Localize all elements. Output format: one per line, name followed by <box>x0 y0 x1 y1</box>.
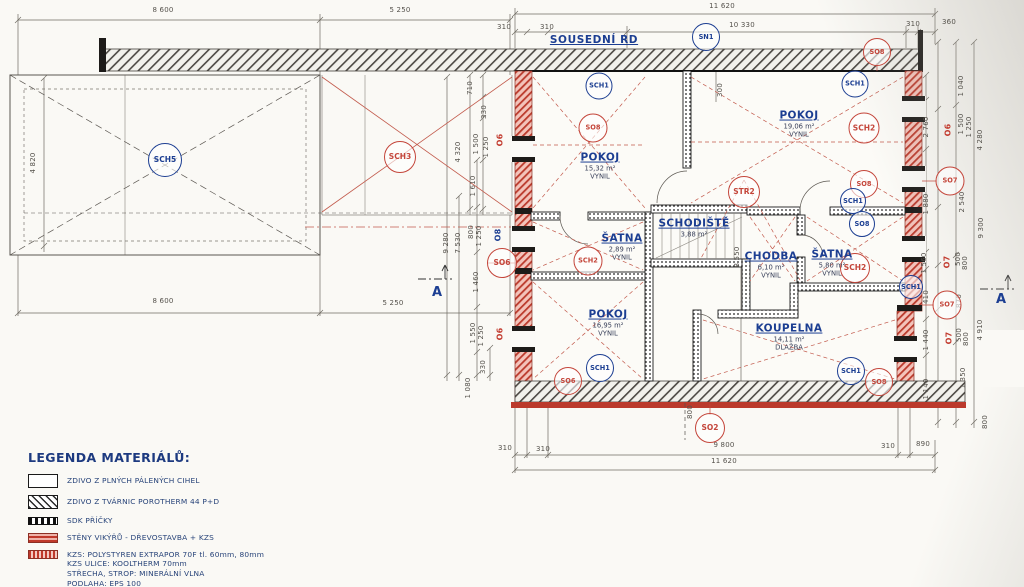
dimension-label: 11 620 <box>711 457 737 465</box>
room-label-5: CHODBA6,10 m²VYNIL <box>745 251 798 280</box>
legend-title: LEGENDA MATERIÁLŮ: <box>28 450 358 465</box>
dimension-label: 800 <box>981 415 989 429</box>
dimension-label: 800 <box>961 256 969 270</box>
room-floor-material: VYNIL <box>580 172 619 180</box>
room-area: 6,10 m² <box>745 263 798 271</box>
ref-tag-sch2: SCH2 <box>574 247 603 276</box>
ref-tag-sch1: SCH1 <box>842 71 869 98</box>
dimension-label: 310 <box>906 20 920 28</box>
dimension-label: 4 280 <box>976 129 984 150</box>
dimension-label: 5 250 <box>389 6 410 14</box>
legend-swatch-plain <box>28 474 58 488</box>
ref-tag-so2: SO2 <box>695 413 725 443</box>
dimension-label: 9 300 <box>977 217 985 238</box>
window-mark-label: O7 <box>943 256 952 269</box>
legend-item-line: STĚNY VIKÝŘŮ - DŘEVOSTAVBA + KZS <box>67 533 214 543</box>
window-mark-label: O6 <box>496 328 505 341</box>
room-area: 16,95 m² <box>588 321 627 329</box>
neighbor-building-label: SOUSEDNÍ RD <box>550 34 638 46</box>
ref-tag-so6: SO6 <box>487 248 517 278</box>
room-label-6: ŠATNA5,80 m²VYNIL <box>812 249 853 278</box>
window-mark-label: O8 <box>494 229 503 242</box>
room-floor-material: DLAŽBA <box>756 343 823 351</box>
dimension-label: 310 <box>497 23 511 31</box>
ref-tag-sch1: SCH1 <box>586 73 613 100</box>
room-name: ŠATNA <box>602 233 643 246</box>
dimension-label: 1 080 <box>464 377 472 398</box>
dimension-label: 9 800 <box>713 441 734 449</box>
room-name: CHODBA <box>745 251 798 264</box>
dimension-label: 1 560 <box>920 252 928 273</box>
dimension-label: 1 880 <box>922 193 930 214</box>
ref-tag-sch1: SCH1 <box>899 275 923 299</box>
ref-tag-so8: SO8 <box>865 368 893 396</box>
room-name: KOUPELNA <box>756 323 823 336</box>
dimension-label: 410 <box>922 290 930 304</box>
legend-item-line: PODLAHA: EPS 100 <box>67 579 264 587</box>
legend-item-line: KZS ULICE: KOOLTHERM 70mm <box>67 559 264 569</box>
legend-item: ZDIVO Z PLNÝCH PÁLENÝCH CIHEL <box>28 474 358 488</box>
room-name: POKOJ <box>588 309 627 322</box>
legend-item: STĚNY VIKÝŘŮ - DŘEVOSTAVBA + KZS <box>28 533 358 543</box>
dimension-label: 8 600 <box>152 6 173 14</box>
floorplan-drawing: SOUSEDNÍ RD A A 8 6005 25011 62031031010… <box>0 0 1024 587</box>
room-area: 2,89 m² <box>602 245 643 253</box>
ref-tag-so7: SO7 <box>936 167 965 196</box>
dimension-label: 1 550 <box>469 322 477 343</box>
ref-tag-so6: SO6 <box>554 367 582 395</box>
room-floor-material: VYNIL <box>745 271 798 279</box>
ref-tag-so8: SO8 <box>849 211 875 237</box>
room-label-7: POKOJ16,95 m²VYNIL <box>588 309 627 338</box>
legend-item-text: STĚNY VIKÝŘŮ - DŘEVOSTAVBA + KZS <box>67 533 214 543</box>
dimension-label: 800 <box>467 225 475 239</box>
legend-item-text: KZS: POLYSTYREN EXTRAPOR 70F tl. 60mm, 8… <box>67 550 264 587</box>
room-area: 19,06 m² <box>779 122 818 130</box>
ref-tag-str2: STR2 <box>728 176 760 208</box>
window-mark-label: O7 <box>945 332 954 345</box>
ref-tag-sch1: SCH1 <box>837 357 865 385</box>
legend-item: KZS: POLYSTYREN EXTRAPOR 70F tl. 60mm, 8… <box>28 550 358 587</box>
legend-items: ZDIVO Z PLNÝCH PÁLENÝCH CIHELZDIVO Z TVÁ… <box>28 474 358 587</box>
dimension-label: 1 350 <box>959 367 967 388</box>
dimension-label: 1 440 <box>922 329 930 350</box>
room-label-4: SCHODIŠTĚ3,88 m² <box>658 218 729 239</box>
dimension-label: 11 620 <box>709 2 735 10</box>
legend-item-line: ZDIVO Z PLNÝCH PÁLENÝCH CIHEL <box>67 476 200 486</box>
dimension-label: 1 250 <box>477 325 485 346</box>
dimension-label: 1 460 <box>472 271 480 292</box>
dimension-label: 7 530 <box>454 232 462 253</box>
dimension-label: 5 250 <box>382 299 403 307</box>
ref-tag-so8: SO8 <box>863 38 891 66</box>
dimension-label: 710 <box>466 81 474 95</box>
ref-tag-so8: SO8 <box>579 114 608 143</box>
window-mark-label: O6 <box>944 124 953 137</box>
dimension-label: 300 <box>716 83 724 97</box>
dimension-label: 1 040 <box>957 75 965 96</box>
legend-item-text: ZDIVO Z TVÁRNIC POROTHERM 44 P+D <box>67 497 219 507</box>
ref-tag-sch3: SCH3 <box>384 141 416 173</box>
legend-item-line: SDK PŘÍČKY <box>67 516 113 526</box>
room-floor-material: VYNIL <box>602 253 643 261</box>
legend-item-text: SDK PŘÍČKY <box>67 516 113 526</box>
legend-item-line: ZDIVO Z TVÁRNIC POROTHERM 44 P+D <box>67 497 219 507</box>
dimension-label: 2 540 <box>958 191 966 212</box>
dimension-label: 4 320 <box>454 141 462 162</box>
section-marker-a-right: A <box>996 292 1006 307</box>
section-marker-a-left: A <box>432 285 442 300</box>
dimension-label: 800 <box>962 332 970 346</box>
room-area: 5,80 m² <box>812 261 853 269</box>
dimension-label: 1 250 <box>965 116 973 137</box>
dimension-label: 8 600 <box>152 297 173 305</box>
dimension-label: 310 <box>536 445 550 453</box>
room-name: POKOJ <box>779 110 818 123</box>
materials-legend: LEGENDA MATERIÁLŮ: ZDIVO Z PLNÝCH PÁLENÝ… <box>28 450 358 587</box>
ref-tag-sch2: SCH2 <box>849 113 880 144</box>
dimension-label: 1 500 <box>472 133 480 154</box>
legend-swatch-red <box>28 533 58 543</box>
dimension-label: 360 <box>942 18 956 26</box>
legend-item-text: ZDIVO Z PLNÝCH PÁLENÝCH CIHEL <box>67 476 200 486</box>
dimension-label: 9 280 <box>442 232 450 253</box>
room-label-3: ŠATNA2,89 m²VYNIL <box>602 233 643 262</box>
ref-tag-so7: SO7 <box>933 291 962 320</box>
dimension-label: 310 <box>498 444 512 452</box>
dimension-label: 310 <box>540 23 554 31</box>
dimension-label: 310 <box>881 442 895 450</box>
legend-swatch-redfine <box>28 550 58 559</box>
legend-swatch-dots <box>28 517 58 525</box>
room-area: 14,11 m² <box>756 335 823 343</box>
dimension-label: 4 910 <box>976 319 984 340</box>
room-name: ŠATNA <box>812 249 853 262</box>
room-area: 15,32 m² <box>580 164 619 172</box>
legend-item: ZDIVO Z TVÁRNIC POROTHERM 44 P+D <box>28 495 358 509</box>
dimension-label: 1 140 <box>922 378 930 399</box>
room-name: SCHODIŠTĚ <box>658 218 729 231</box>
room-area: 3,88 m² <box>658 230 729 238</box>
ref-tag-sn1: SN1 <box>692 23 720 51</box>
dimension-label: 330 <box>480 105 488 119</box>
dimension-label: 1 610 <box>469 175 477 196</box>
room-floor-material: VYNIL <box>779 130 818 138</box>
legend-item: SDK PŘÍČKY <box>28 516 358 526</box>
dimension-label: 800 <box>686 405 694 419</box>
legend-swatch-hatch <box>28 495 58 509</box>
room-label-2: POKOJ19,06 m²VYNIL <box>779 110 818 139</box>
dimension-label: 2 760 <box>922 116 930 137</box>
room-name: POKOJ <box>580 152 619 165</box>
dimension-label: 890 <box>916 440 930 448</box>
ref-tag-sch1: SCH1 <box>586 354 614 382</box>
dimension-label: 10 330 <box>729 21 755 29</box>
window-mark-label: O6 <box>496 134 505 147</box>
room-floor-material: VYNIL <box>588 329 627 337</box>
room-label-8: KOUPELNA14,11 m²DLAŽBA <box>756 323 823 352</box>
room-label-1: POKOJ15,32 m²VYNIL <box>580 152 619 181</box>
ref-tag-sch5: SCH5 <box>148 143 182 177</box>
legend-item-line: STŘECHA, STROP: MINERÁLNÍ VLNA <box>67 569 264 579</box>
dimension-label: 330 <box>479 360 487 374</box>
dimension-label: 1 250 <box>482 136 490 157</box>
dimension-label: 8 550 <box>733 246 741 267</box>
dimension-label: 4 820 <box>29 152 37 173</box>
dimension-label: 1 500 <box>957 113 965 134</box>
room-floor-material: VYNIL <box>812 269 853 277</box>
dimension-label: 1 250 <box>475 225 483 246</box>
legend-item-line: KZS: POLYSTYREN EXTRAPOR 70F tl. 60mm, 8… <box>67 550 264 560</box>
